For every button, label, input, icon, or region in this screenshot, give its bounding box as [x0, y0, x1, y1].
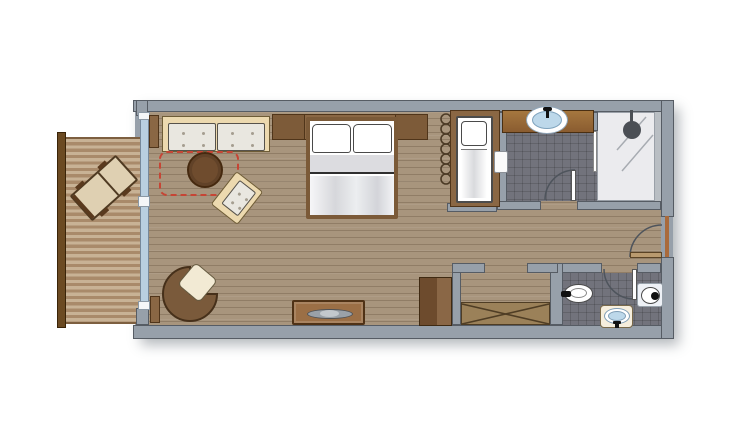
nightstand-right [395, 114, 428, 140]
sofa-cushion-right [217, 123, 265, 151]
wall-closet-stub-left [452, 263, 485, 273]
bed-pillow-left [312, 124, 351, 153]
nightstand-left [272, 114, 305, 140]
tv-stand-hub [320, 310, 339, 317]
tuft-dots [231, 132, 234, 135]
bathroom-door-leaf [571, 170, 576, 201]
double-bed [306, 117, 398, 219]
shower-glass-panel [593, 131, 597, 172]
crib-mattress [461, 149, 487, 198]
glass-mullion [138, 196, 150, 207]
glass-mullion [138, 301, 150, 310]
entry-door-leaf [630, 252, 662, 258]
tuft-dots [237, 192, 241, 196]
luggage-rack-cross [462, 304, 549, 324]
toilet-flush-icon [561, 291, 571, 297]
crib-pillow [461, 121, 487, 146]
floor-plan-canvas [0, 0, 754, 435]
toilet [561, 284, 594, 304]
vanity-sink [526, 106, 568, 134]
wc-door-arc [604, 269, 634, 299]
sofa [162, 116, 270, 152]
round-coffee-table [187, 152, 223, 188]
wall-wc-north-right [637, 263, 661, 273]
curtain-panel-bottom [150, 296, 160, 323]
toilet-2-drain-icon [651, 292, 659, 300]
balcony-glass-wall [140, 114, 149, 309]
bed-duvet [310, 176, 394, 215]
toilet-2 [637, 283, 663, 307]
washbasin-bowl [608, 311, 626, 321]
wall-bathroom-south-right [577, 201, 661, 210]
curtain-panel-top [149, 115, 159, 148]
tuft-dots [182, 132, 185, 135]
sofa-cushion-left [168, 123, 216, 151]
washbasin-faucet-icon [615, 322, 619, 328]
wall-bottom [133, 325, 674, 339]
crib-single-bed [456, 116, 493, 203]
pocket-door-panel [494, 151, 508, 173]
wall-left-pier [136, 308, 149, 325]
toilet-bowl-inner [570, 288, 587, 298]
bed-pillow-right [353, 124, 392, 153]
wall-right-upper [661, 100, 674, 217]
minibar-cabinet [419, 277, 452, 326]
bed-sheet-band [310, 155, 394, 174]
sink-faucet-icon [546, 110, 549, 118]
shower-head [623, 121, 641, 139]
wall-closet-stub-right [527, 263, 558, 273]
wall-bathroom-south-left [497, 201, 541, 210]
washbasin [600, 305, 633, 328]
entry-threshold [665, 216, 669, 257]
